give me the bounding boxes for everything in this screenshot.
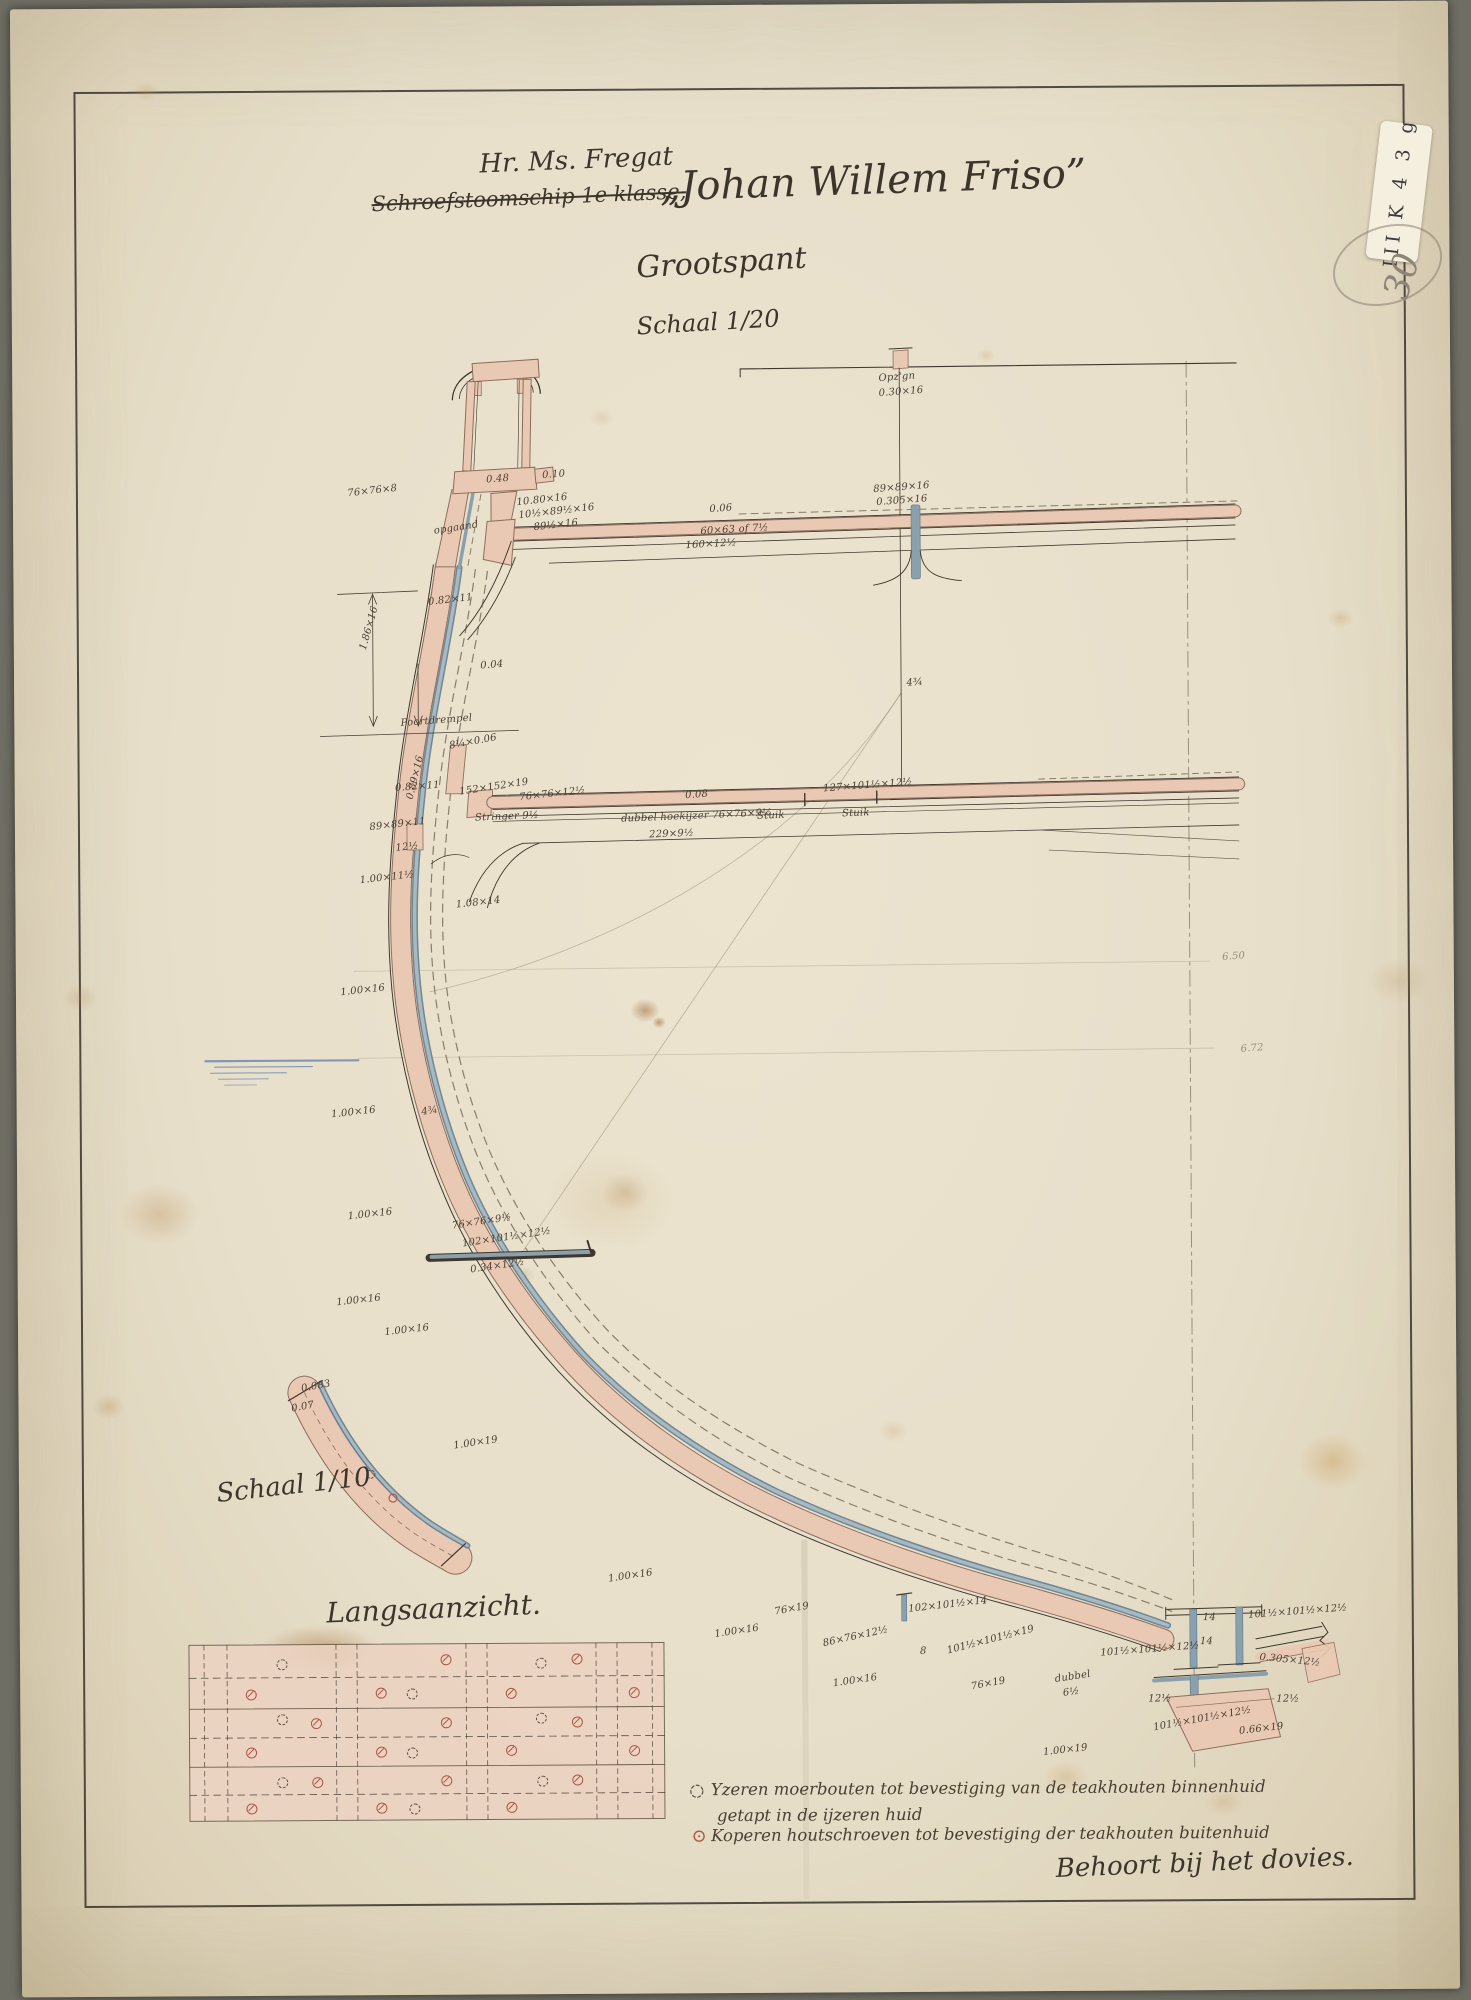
bilge-angle-bar: [429, 1241, 591, 1258]
legend-item-copper-screws: Koperen houtschroeven tot bevestiging de…: [711, 1823, 1270, 1845]
construction-lines: [352, 691, 1215, 1254]
waterline: [205, 1060, 358, 1085]
bulwark-band: [435, 490, 481, 569]
scanned-drawing-photo: 0.480.1076×76×810.80×1610½×89½×1689½×16o…: [0, 0, 1471, 2000]
frame-clip: [897, 1593, 912, 1621]
legend-item-iron-bolts-line2: getapt in de ijzeren huid: [717, 1805, 923, 1825]
middle-deck: [406, 740, 1239, 908]
grootspant-cross-section-drawing: [0, 0, 1471, 2000]
legend-item-iron-bolts: Yzeren moerbouten tot bevestiging van de…: [711, 1777, 1266, 1799]
legend-symbols: [691, 1785, 704, 1841]
hull-shell: [386, 560, 1176, 1656]
keel-assembly: [1154, 1604, 1341, 1751]
centerline: [1186, 361, 1195, 1767]
upper-deck: [458, 346, 1239, 790]
langsaanzicht-grid: [189, 1642, 665, 1821]
paper-sheet: 0.480.1076×76×810.80×1610½×89½×1689½×16o…: [10, 1, 1460, 1998]
